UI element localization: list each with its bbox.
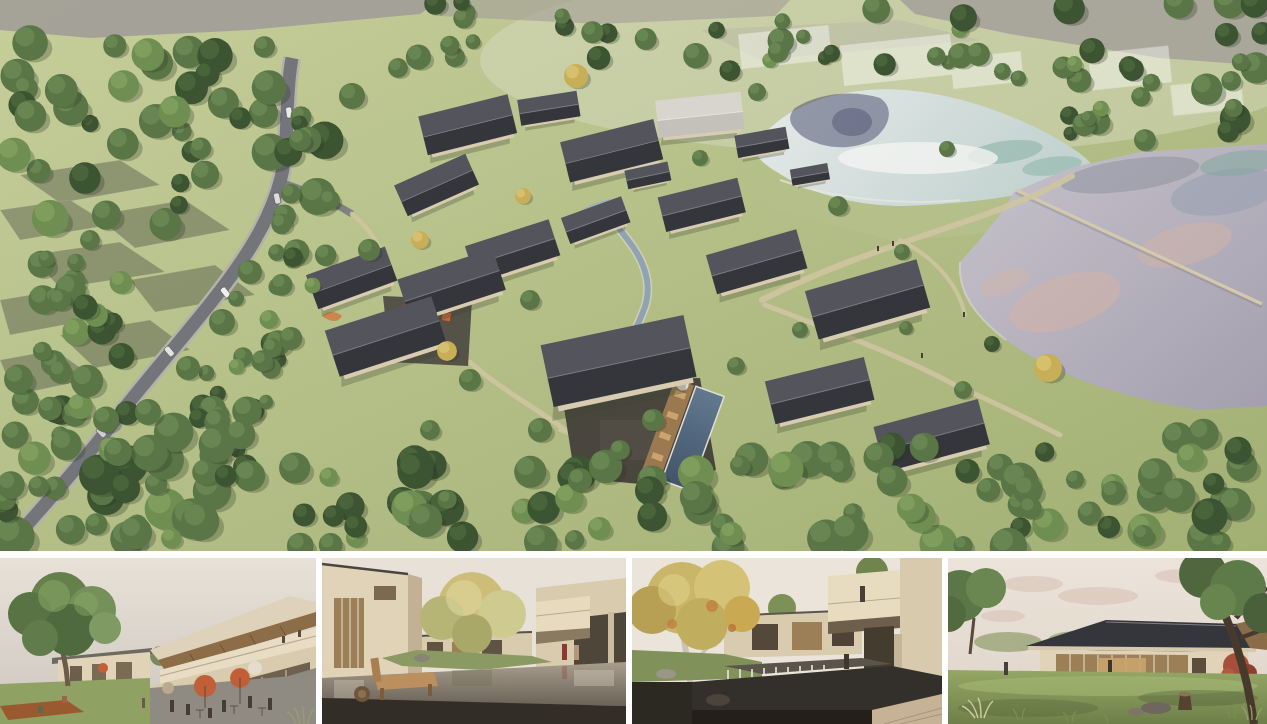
aerial-render-illustration: [0, 0, 1267, 551]
thumbnail-plaza-street-view: [0, 558, 316, 724]
aerial-masterplan-render: [0, 0, 1267, 551]
courtyard-person: [844, 654, 849, 669]
presentation-board: [0, 0, 1267, 724]
thumbnail-strip: [0, 558, 1267, 724]
plaza-view-illustration: [0, 558, 316, 724]
pond-courtyard-illustration: [322, 558, 626, 724]
small-umbrella: [98, 663, 108, 673]
thumbnail-waterfall-courtyard: [632, 558, 942, 724]
garden-pavilion-illustration: [948, 558, 1267, 724]
person-inside: [1108, 660, 1112, 674]
balcony-person: [860, 586, 865, 602]
house: [655, 92, 745, 146]
thumbnail-reflecting-pond-courtyard: [322, 558, 626, 724]
thumbnail-garden-pavilion: [948, 558, 1267, 724]
waterfall-courtyard-illustration: [632, 558, 942, 724]
person-on-lawn: [1004, 662, 1008, 675]
